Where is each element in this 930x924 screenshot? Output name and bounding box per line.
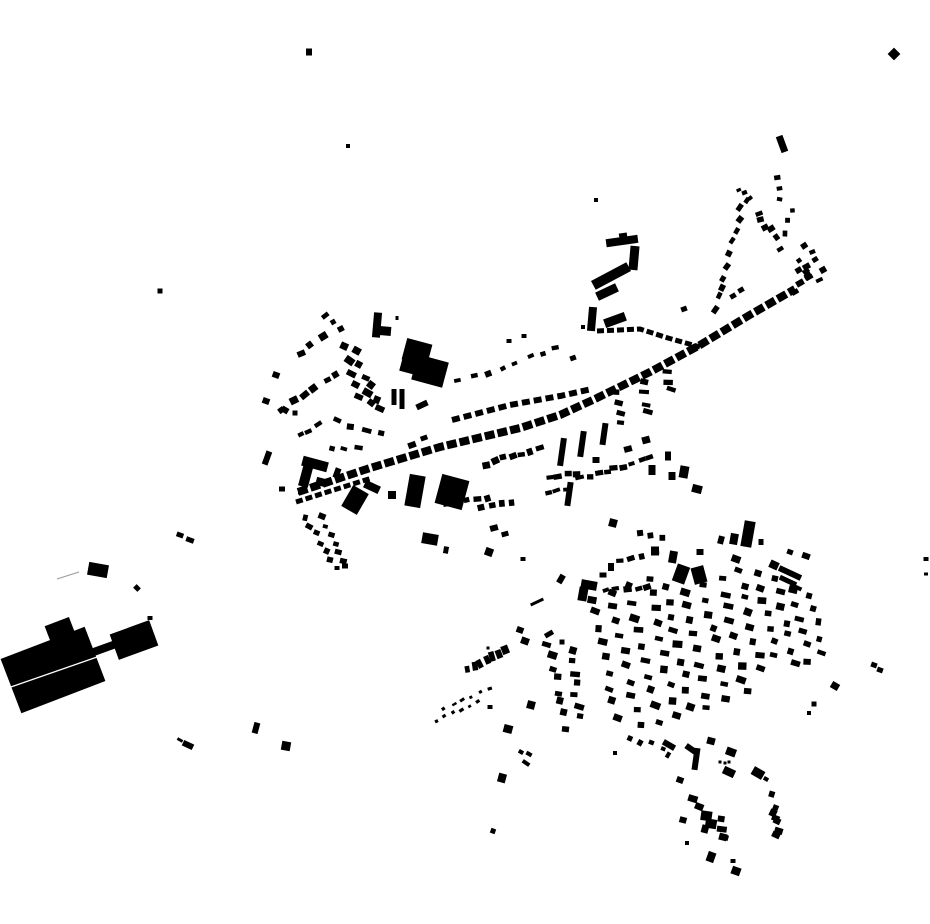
figure-ground-map xyxy=(0,0,930,924)
map-canvas xyxy=(0,0,930,924)
